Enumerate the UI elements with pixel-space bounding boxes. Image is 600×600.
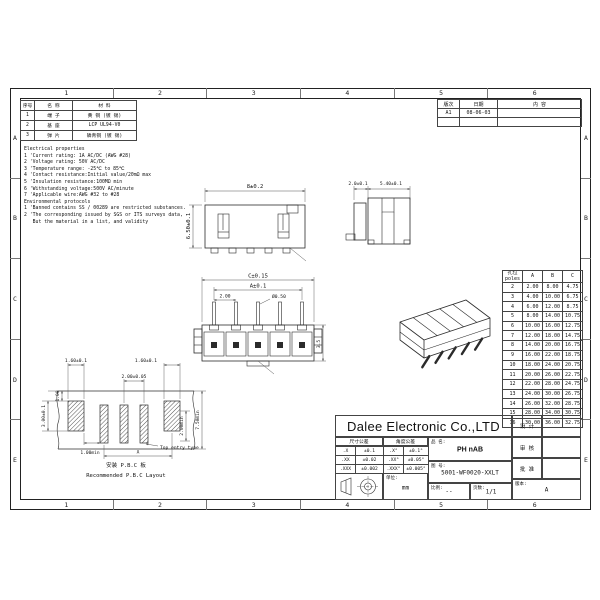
- table-cell: 20.00: [523, 370, 543, 380]
- table-row: .XX±0.02.XX°±0.05°: [336, 456, 429, 465]
- revision-header-row: 版次 日期 内 容: [438, 100, 582, 109]
- table-cell: A1: [438, 109, 460, 118]
- version-cell: 版本: A: [512, 479, 581, 500]
- table-row: 1018.0024.0020.75: [503, 360, 583, 370]
- materials-header-no: 序号: [21, 101, 35, 111]
- dim-pad-height: 3.00±0.1: [41, 405, 47, 427]
- table-row: 610.0016.0012.75: [503, 321, 583, 331]
- dim-pad-left: 1.60±0.1: [65, 358, 87, 364]
- list-item: 2: [114, 500, 208, 510]
- table-cell: .XX: [336, 456, 356, 465]
- dim-front-pitch: 2.00: [219, 294, 230, 300]
- table-cell: 6: [503, 321, 523, 331]
- list-item: 2 'Voltage rating: 50V AC/DC: [24, 160, 186, 167]
- table-cell: 28.75: [563, 399, 583, 409]
- table-cell: 8: [503, 341, 523, 351]
- list-item: 5: [395, 500, 489, 510]
- list-item: 1: [20, 88, 114, 98]
- dim-front-a: A±0.1: [250, 284, 267, 290]
- table-cell: 6.00: [523, 302, 543, 312]
- design-label: 设 计: [512, 415, 542, 437]
- table-cell: 18.00: [523, 360, 543, 370]
- table-cell: 22.00: [543, 350, 563, 360]
- table-row: 2基 座LCP UL94-V0: [21, 121, 137, 131]
- table-cell: 22.00: [523, 379, 543, 389]
- dim-inner: 2.00min: [179, 416, 185, 436]
- table-cell: 24.00: [543, 360, 563, 370]
- table-cell: 10.00: [543, 292, 563, 302]
- materials-header-row: 序号 名 称 材 料: [21, 101, 137, 111]
- pcb-caption-en: Recommended P.B.C Layout: [86, 473, 165, 479]
- materials-header-name: 名 称: [35, 101, 73, 111]
- poles-header-b: B: [543, 271, 563, 283]
- dim-top-width: 8±0.2: [247, 184, 264, 190]
- table-cell: 10.00: [523, 321, 543, 331]
- dim-pad-right: 1.60±0.1: [135, 358, 157, 364]
- table-cell: 5: [503, 312, 523, 322]
- list-item: 7 'Applicable wire:AWG #32 to #28: [24, 193, 186, 200]
- table-row: 712.0018.0014.75: [503, 331, 583, 341]
- poles-dimension-table: 孔位 poles A B C 22.008.004.7534.0010.006.…: [502, 270, 583, 428]
- table-cell: 黄 铜 (镀 锡): [73, 111, 137, 121]
- table-row: 1端 子黄 铜 (镀 锡): [21, 111, 137, 121]
- table-cell: 9: [503, 350, 523, 360]
- table-cell: .XX°: [384, 456, 404, 465]
- pcb-layout-drawing: 1.60±0.1 1.60±0.1 2.00±0.05 1.00 3.00±0.…: [28, 353, 224, 483]
- list-item: A: [581, 98, 591, 179]
- table-cell: 4: [503, 302, 523, 312]
- revision-header-date: 日期: [460, 100, 498, 109]
- table-row: 58.0014.0010.75: [503, 312, 583, 322]
- table-cell: 4.00: [523, 292, 543, 302]
- table-cell: [438, 118, 460, 127]
- approve-label: 批 准: [512, 458, 542, 479]
- table-cell: 7: [503, 331, 523, 341]
- review-signature-cell: [542, 437, 581, 458]
- table-cell: 3: [21, 131, 35, 141]
- tolerance-dim-header: 尺寸公差: [335, 437, 383, 446]
- table-row: 22.008.004.75: [503, 283, 583, 293]
- iso-pins: [422, 339, 482, 368]
- table-cell: 32.00: [543, 399, 563, 409]
- table-cell: 1: [21, 111, 35, 121]
- table-cell: 20.75: [563, 360, 583, 370]
- table-cell: 10.75: [563, 312, 583, 322]
- tolerance-angle-header: 角度公差: [383, 437, 428, 446]
- scale-cell: 比例: --: [428, 483, 470, 500]
- table-cell: 基 座: [35, 121, 73, 131]
- table-cell: ±0.05°: [404, 456, 429, 465]
- table-cell: 2: [21, 121, 35, 131]
- isometric-view-drawing: [378, 288, 500, 388]
- drawing-number-label: 图 号:: [431, 463, 445, 469]
- list-item: 1: [20, 500, 114, 510]
- unit-cell: 单位: mm: [383, 473, 428, 500]
- dim-top-height: 6.50±0.1: [186, 213, 192, 240]
- company-name: Dalee Electronic Co.,LTD: [335, 415, 512, 437]
- drawing-number-value: 5001-WF0020-XXLT: [429, 470, 511, 477]
- dim-outer: 7.50min: [195, 410, 201, 430]
- table-row: 3弹 片磷青铜 (镀 锡): [21, 131, 137, 141]
- list-item: 3: [207, 88, 301, 98]
- list-item: 2 'The corresponding issued by SGS or IT…: [24, 213, 186, 220]
- part-name-cell: 品 名: PH nAB: [428, 437, 512, 461]
- table-cell: 20.00: [543, 341, 563, 351]
- table-cell: 10: [503, 360, 523, 370]
- poles-header-row: 孔位 poles A B C: [503, 271, 583, 283]
- zone-numbers-bottom: 123456: [20, 500, 581, 510]
- review-label: 审 核: [512, 437, 542, 458]
- poles-header-en: poles: [504, 277, 521, 283]
- table-cell: 16.00: [543, 321, 563, 331]
- table-cell: 磷青铜 (镀 锡): [73, 131, 137, 141]
- table-cell: 13: [503, 389, 523, 399]
- table-cell: 30.00: [543, 389, 563, 399]
- table-cell: 12: [503, 379, 523, 389]
- scale-value: --: [429, 489, 469, 496]
- table-cell: 16.75: [563, 341, 583, 351]
- table-cell: 14.75: [563, 331, 583, 341]
- spec-notes: Electrical properties1 'Current rating: …: [24, 147, 186, 226]
- zone-letters-left: ABCDE: [10, 98, 20, 500]
- table-row: 1120.0026.0022.75: [503, 370, 583, 380]
- table-cell: 24.75: [563, 379, 583, 389]
- table-cell: .X°: [384, 447, 404, 456]
- drawing-sheet: 123456 123456 ABCDE ABCDE 序号 名 称 材 料 1端 …: [0, 0, 600, 600]
- list-item: But the material in a list, and validity: [24, 220, 186, 227]
- tolerance-table: .X±0.1.X°±0.1°.XX±0.02.XX°±0.05°.XXX±0.0…: [335, 446, 429, 474]
- table-cell: 3: [503, 292, 523, 302]
- table-cell: 11: [503, 370, 523, 380]
- list-item: 4: [301, 88, 395, 98]
- table-row: A108-06-03: [438, 109, 582, 118]
- table-cell: LCP UL94-V0: [73, 121, 137, 131]
- table-row: 916.0022.0018.75: [503, 350, 583, 360]
- top-view-drawing: 8±0.2 6.50±0.1: [185, 180, 317, 264]
- projection-symbol-icon: [336, 474, 382, 499]
- dim-gap: 1.00min: [80, 450, 100, 456]
- table-row: 34.0010.006.75: [503, 292, 583, 302]
- table-cell: 18.75: [563, 350, 583, 360]
- list-item: A: [10, 98, 20, 179]
- unit-value: mm: [384, 484, 427, 491]
- list-item: 5: [395, 88, 489, 98]
- unit-label: 单位:: [386, 475, 398, 481]
- list-item: E: [581, 420, 591, 500]
- poles-header-a: A: [523, 271, 543, 283]
- table-cell: 26.00: [523, 399, 543, 409]
- side-view-drawing: 2.0±0.1 5.40±0.1: [342, 178, 426, 256]
- dim-front-pin: Ø0.50: [272, 293, 286, 300]
- table-cell: [498, 118, 582, 127]
- table-cell: 12.00: [523, 331, 543, 341]
- table-cell: [498, 109, 582, 118]
- approve-signature-cell: [542, 458, 581, 479]
- list-item: 4 'Contact resistance:Initial value/20mΩ…: [24, 173, 186, 180]
- table-cell: 08-06-03: [460, 109, 498, 118]
- list-item: C: [10, 259, 20, 340]
- table-row: 814.0020.0016.75: [503, 341, 583, 351]
- table-cell: 16.00: [523, 350, 543, 360]
- table-cell: 26.75: [563, 389, 583, 399]
- table-cell: 6.75: [563, 292, 583, 302]
- revision-table: 版次 日期 内 容 A108-06-03: [437, 99, 582, 127]
- design-signature-cell: [542, 415, 581, 437]
- list-item: E: [10, 420, 20, 500]
- table-cell: 2: [503, 283, 523, 293]
- table-cell: 弹 片: [35, 131, 73, 141]
- dim-front-c: C±0.15: [248, 274, 268, 280]
- table-row: 46.0012.008.75: [503, 302, 583, 312]
- list-item: B: [10, 179, 20, 260]
- materials-table: 序号 名 称 材 料 1端 子黄 铜 (镀 锡)2基 座LCP UL94-V03…: [20, 100, 137, 141]
- pages-value: 1/1: [471, 489, 511, 496]
- table-cell: 24.00: [523, 389, 543, 399]
- dim-edge: 1.00: [55, 390, 61, 401]
- table-cell: [460, 118, 498, 127]
- table-cell: 8.00: [523, 312, 543, 322]
- table-row: .X±0.1.X°±0.1°: [336, 447, 429, 456]
- dim-side-left: 2.0±0.1: [348, 181, 368, 187]
- table-row: 1222.0028.0024.75: [503, 379, 583, 389]
- table-cell: 28.00: [543, 379, 563, 389]
- table-cell: 8.00: [543, 283, 563, 293]
- dim-side-right: 5.40±0.1: [380, 181, 402, 187]
- pages-cell: 页数: 1/1: [470, 483, 512, 500]
- table-cell: 26.00: [543, 370, 563, 380]
- zone-numbers-top: 123456: [20, 88, 581, 98]
- materials-header-material: 材 料: [73, 101, 137, 111]
- dim-pitch: 2.00±0.05: [122, 374, 147, 380]
- table-cell: 14: [503, 399, 523, 409]
- table-cell: ±0.1: [356, 447, 384, 456]
- dim-front-height: 3.5: [316, 340, 322, 349]
- list-item: 5 'Insulation resistance:100MΩ min: [24, 180, 186, 187]
- drawing-number-cell: 图 号: 5001-WF0020-XXLT: [428, 461, 512, 483]
- poles-header-c: C: [563, 271, 583, 283]
- table-cell: ±0.02: [356, 456, 384, 465]
- table-cell: 2.00: [523, 283, 543, 293]
- pcb-caption-cn: 安装 P.B.C 板: [106, 461, 146, 469]
- list-item: Electrical properties: [24, 147, 186, 154]
- list-item: 2: [114, 88, 208, 98]
- table-cell: 12.75: [563, 321, 583, 331]
- part-name-value: PH nAB: [429, 447, 511, 454]
- table-cell: 12.00: [543, 302, 563, 312]
- table-cell: ±0.1°: [404, 447, 429, 456]
- table-cell: 14.00: [543, 312, 563, 322]
- table-cell: 4.75: [563, 283, 583, 293]
- table-row: 1426.0032.0028.75: [503, 399, 583, 409]
- table-cell: 22.75: [563, 370, 583, 380]
- dim-span: A: [137, 450, 140, 456]
- list-item: B: [581, 179, 591, 260]
- table-cell: 14.00: [523, 341, 543, 351]
- list-item: 3: [207, 500, 301, 510]
- table-cell: .X: [336, 447, 356, 456]
- title-block: Dalee Electronic Co.,LTD 设 计 审 核 批 准 版本:…: [335, 415, 581, 500]
- table-cell: 8.75: [563, 302, 583, 312]
- list-item: 1 'Banned contains SS / 00289 are restri…: [24, 206, 186, 213]
- poles-header-poles: 孔位 poles: [503, 271, 523, 283]
- list-item: 6: [488, 88, 581, 98]
- table-cell: 端 子: [35, 111, 73, 121]
- version-value: A: [513, 487, 580, 494]
- list-item: D: [10, 340, 20, 421]
- table-cell: 18.00: [543, 331, 563, 341]
- part-name-label: 品 名:: [431, 439, 445, 445]
- entry-type-label: Top entry type: [160, 445, 199, 451]
- table-row: [438, 118, 582, 127]
- revision-header-rev: 版次: [438, 100, 460, 109]
- projection-symbol-cell: [335, 473, 383, 500]
- table-row: 1324.0030.0026.75: [503, 389, 583, 399]
- revision-header-content: 内 容: [498, 100, 582, 109]
- list-item: 6: [488, 500, 581, 510]
- list-item: 4: [301, 500, 395, 510]
